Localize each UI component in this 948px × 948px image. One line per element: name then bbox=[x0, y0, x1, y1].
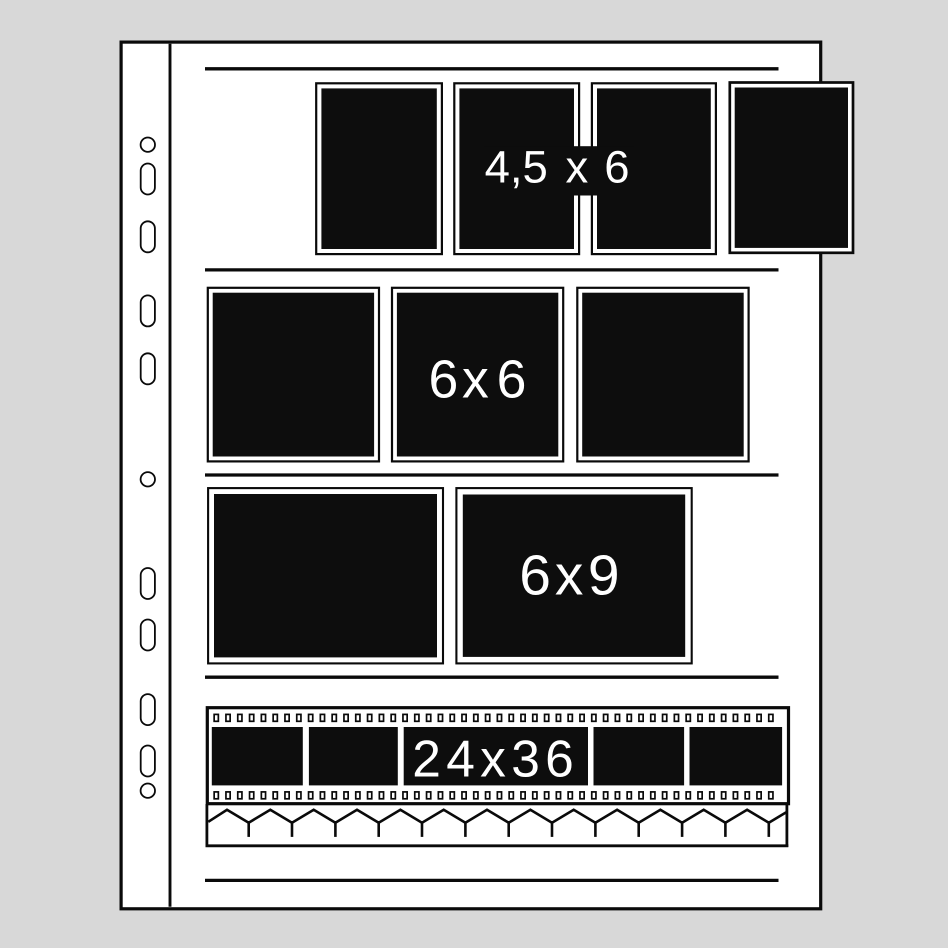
svg-text:24x36: 24x36 bbox=[412, 729, 579, 787]
svg-text:6x9: 6x9 bbox=[519, 544, 619, 608]
svg-text:6x6: 6x6 bbox=[429, 350, 527, 410]
